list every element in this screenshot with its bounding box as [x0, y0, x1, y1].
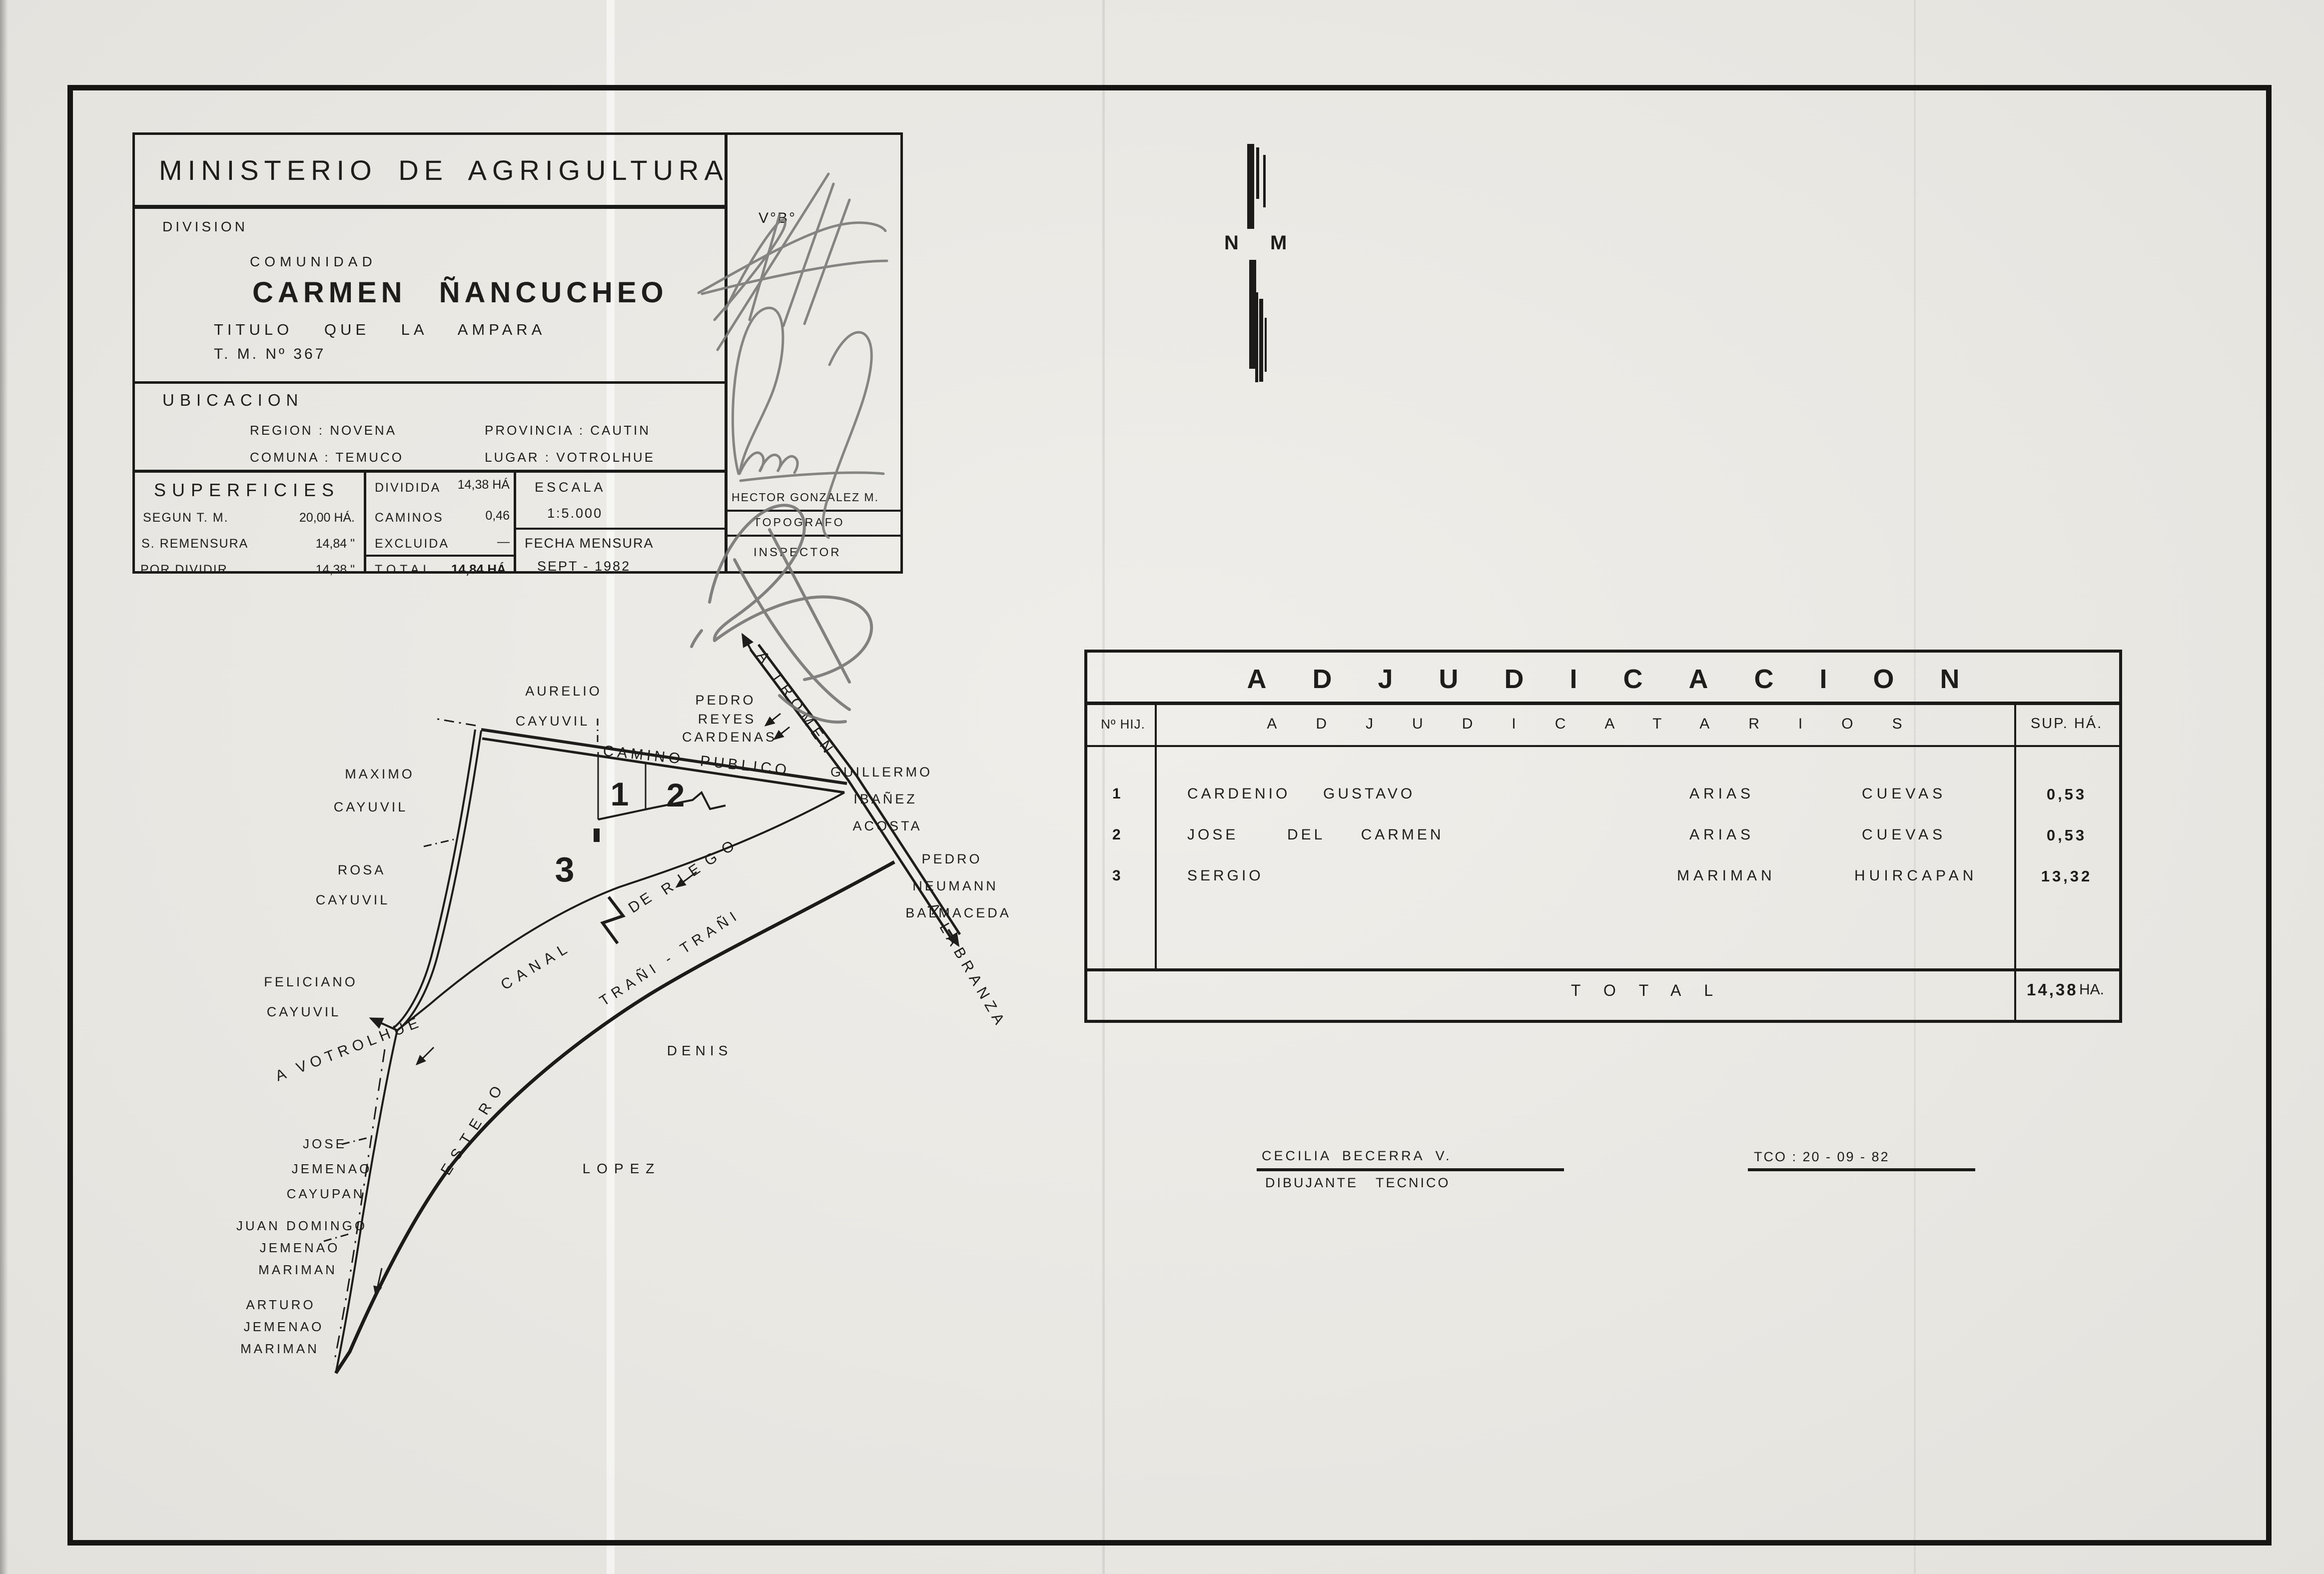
row-sup-ha: 0,53: [2022, 826, 2112, 844]
row-surname: ARIAS: [1689, 786, 1754, 802]
division-label: DIVISION: [162, 219, 248, 235]
adjudication-table: ADJUDICACION Nº HIJ. ADJUDICATARIOS SUP.…: [1084, 650, 2122, 1023]
column-header-adjudicatarios: ADJUDICATARIOS: [1155, 716, 2014, 733]
north-arrow-bar: [1263, 155, 1266, 207]
total-unit: HA.: [2079, 981, 2104, 998]
div-row-value: —: [435, 535, 510, 549]
north-arrow-bar: [1256, 147, 1259, 199]
scanned-plan-page: MINISTERIO DE AGRIGULTURA DIVISION COMUN…: [0, 0, 2324, 1574]
north-arrow-bar: [1259, 299, 1263, 382]
drafter-role: DIBUJANTE TECNICO: [1265, 1175, 1451, 1191]
row-surname2: HUIRCAPAN: [1854, 867, 1977, 884]
row-sup-ha: 13,32: [2022, 867, 2112, 885]
row-number: 3: [1112, 867, 1121, 884]
divider: [364, 555, 516, 557]
divider: [1087, 968, 2119, 971]
surveyor-role: TOPOGRAFO: [754, 516, 845, 529]
row-surname: ARIAS: [1689, 826, 1754, 843]
divider: [1748, 1168, 1975, 1171]
row-given-name2: DEL CARMEN: [1287, 826, 1444, 843]
community-name: CARMEN ÑANCUCHEO: [252, 276, 668, 309]
row-given-name2: GUSTAVO: [1323, 786, 1415, 802]
row-surname2: CUEVAS: [1862, 786, 1946, 802]
north-arrow-bar: [1255, 292, 1258, 382]
column-header-hij: Nº HIJ.: [1091, 717, 1155, 732]
row-given-name: SERGIO: [1187, 867, 1264, 884]
drafter-name: CECILIA BECERRA V.: [1262, 1148, 1452, 1164]
row-sup-ha: 0,53: [2022, 786, 2112, 803]
sup-row-label: S. REMENSURA: [141, 537, 248, 551]
divider: [135, 470, 725, 473]
div-row-value: 0,46: [435, 509, 510, 523]
vobo-label: V°B°: [759, 210, 796, 227]
divider: [725, 135, 728, 571]
superficies-total-value: 14,84 HÁ.: [435, 562, 510, 577]
divider: [725, 510, 900, 512]
surveyor-name: HECTOR GONZALEZ M.: [732, 491, 879, 504]
page-left-edge-shadow: [0, 0, 8, 1574]
total-value: 14,38: [2027, 980, 2078, 999]
div-row-value: 14,38 HÁ: [435, 478, 510, 492]
fecha-label: FECHA MENSURA: [525, 536, 654, 551]
div-row-label: CAMINOS: [375, 511, 444, 525]
divider: [1155, 702, 1157, 969]
ubicacion-lugar: LUGAR : VOTROLHUE: [485, 450, 655, 465]
superficies-label: SUPERFICIES: [154, 480, 340, 501]
divider: [1257, 1168, 1564, 1171]
row-surname2: CUEVAS: [1862, 826, 1946, 843]
row-number: 2: [1112, 826, 1121, 843]
divider: [2014, 702, 2016, 1020]
row-given-name: CARDENIO: [1187, 786, 1290, 802]
sup-row-label: SEGUN T. M.: [143, 511, 229, 525]
north-arrow-label: N M: [1224, 232, 1300, 254]
ubicacion-provincia: PROVINCIA : CAUTIN: [485, 423, 651, 438]
divider: [135, 205, 725, 209]
sup-row-value: 14,38 ": [275, 563, 355, 577]
divider: [725, 535, 900, 537]
column-header-sup: SUP. HÁ.: [2014, 716, 2119, 732]
divider: [514, 528, 725, 530]
titulo-line: TITULO QUE LA AMPARA: [214, 321, 546, 339]
fecha-value: SEPT - 1982: [537, 559, 631, 574]
superficies-total-label: TOTAL: [375, 563, 434, 577]
adjudication-title: ADJUDICACION: [1087, 664, 2119, 695]
ubicacion-comuna: COMUNA : TEMUCO: [250, 450, 404, 465]
tm-number: T. M. Nº 367: [214, 346, 326, 363]
divider: [135, 381, 725, 384]
ubicacion-label: UBICACION: [162, 391, 303, 410]
ubicacion-region: REGION : NOVENA: [250, 423, 397, 438]
north-arrow-bar: [1265, 318, 1267, 372]
row-number: 1: [1112, 786, 1121, 802]
title-block: MINISTERIO DE AGRIGULTURA DIVISION COMUN…: [132, 132, 903, 574]
sup-row-value: 20,00 HÁ.: [275, 511, 355, 525]
inspector-role: INSPECTOR: [754, 546, 841, 560]
row-given-name: JOSE: [1187, 826, 1238, 843]
divider: [1087, 745, 2119, 747]
div-row-label: DIVIDIDA: [375, 481, 441, 495]
north-arrow-bar: [1247, 144, 1254, 229]
divider: [1087, 702, 2119, 705]
escala-label: ESCALA: [535, 480, 606, 495]
total-label: TOTAL: [1517, 981, 1767, 1000]
sup-row-label: POR DIVIDIR: [140, 563, 228, 577]
plan-reference: TCO : 20 - 09 - 82: [1754, 1149, 1890, 1165]
escala-value: 1:5.000: [547, 506, 603, 521]
ministry-title: MINISTERIO DE AGRIGULTURA: [159, 154, 729, 186]
comunidad-label: COMUNIDAD: [250, 254, 377, 270]
row-surname: MARIMAN: [1677, 867, 1776, 884]
sup-row-value: 14,84 ": [275, 537, 355, 551]
